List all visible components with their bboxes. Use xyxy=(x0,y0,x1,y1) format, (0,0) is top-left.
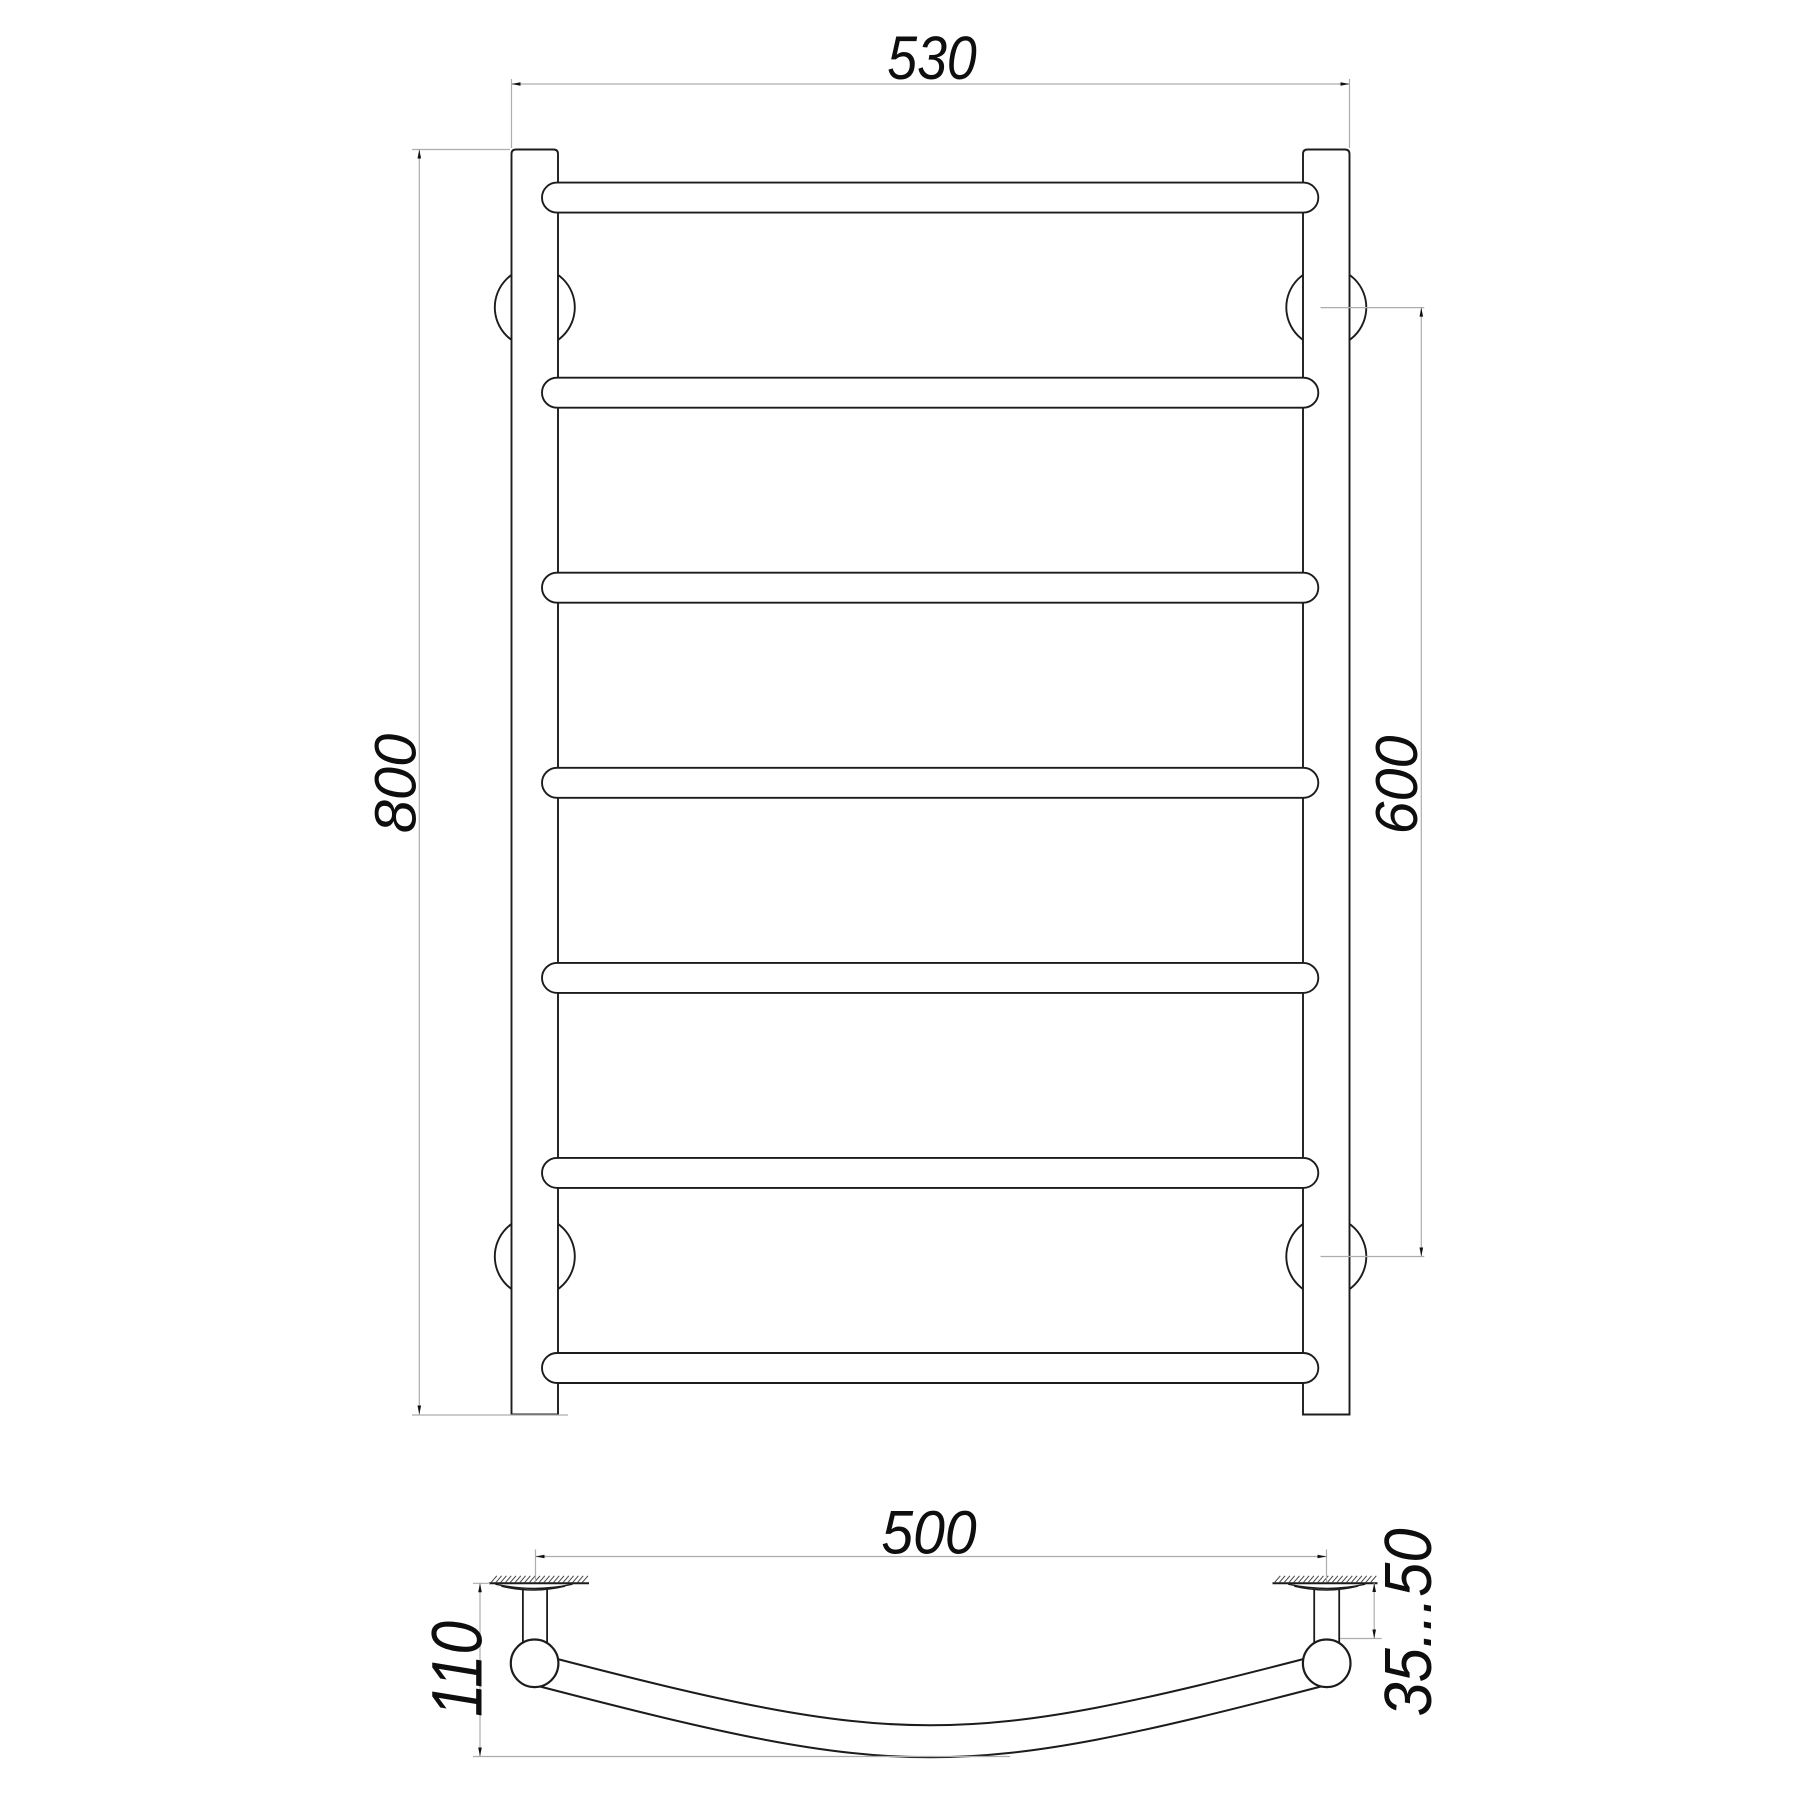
svg-text:600: 600 xyxy=(1363,735,1430,834)
svg-text:110: 110 xyxy=(417,1621,497,1717)
svg-text:800: 800 xyxy=(363,734,428,834)
svg-text:35...50: 35...50 xyxy=(1371,1528,1446,1716)
svg-text:530: 530 xyxy=(887,25,977,93)
svg-text:500: 500 xyxy=(881,1498,976,1567)
